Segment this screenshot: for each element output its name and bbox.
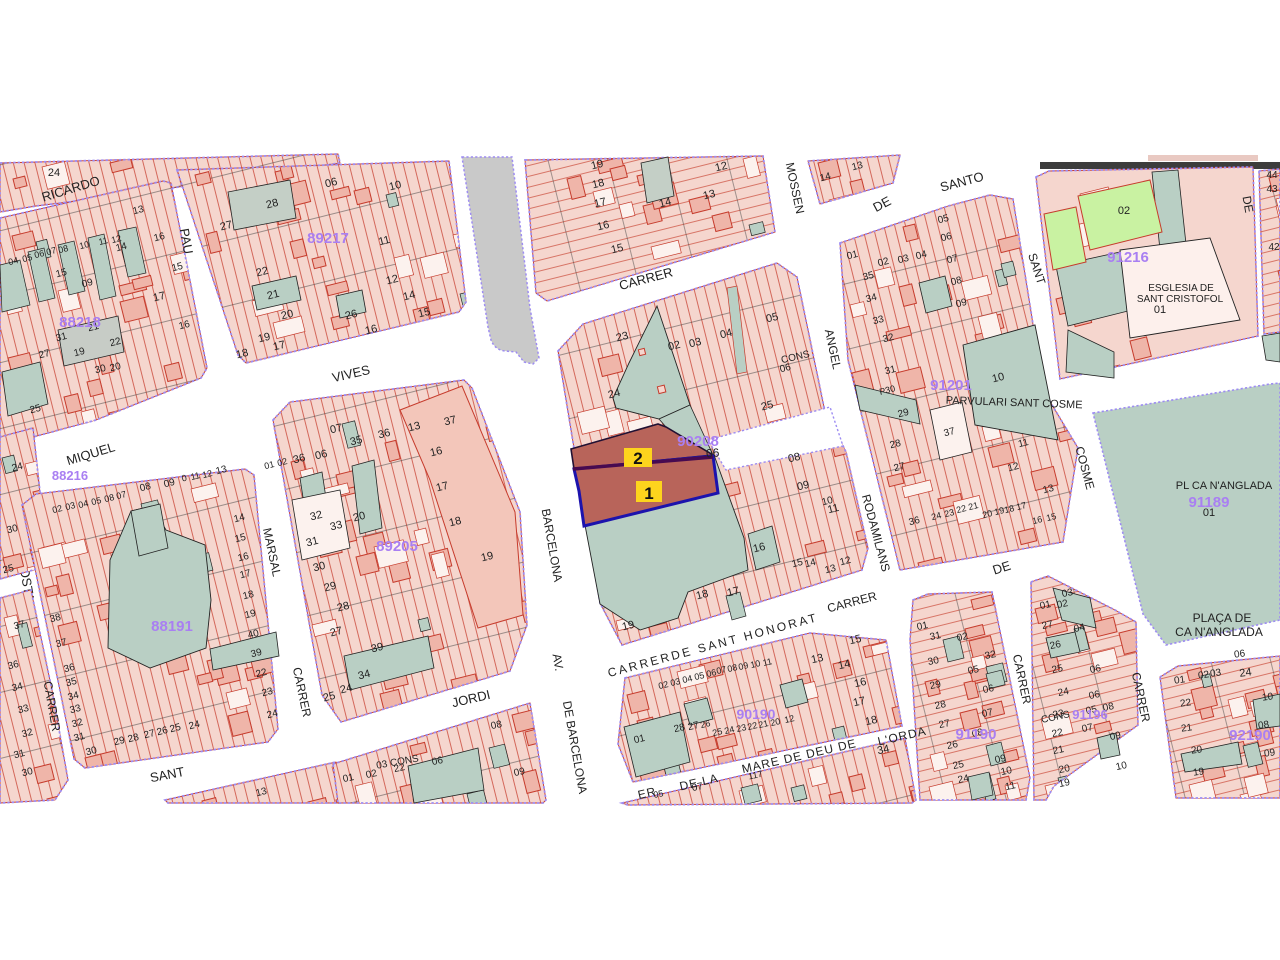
svg-text:02: 02 <box>1118 205 1130 217</box>
svg-text:42: 42 <box>1268 242 1280 253</box>
svg-text:2: 2 <box>633 449 642 468</box>
svg-text:DE: DE <box>1240 195 1257 214</box>
svg-text:01: 01 <box>1173 674 1186 687</box>
svg-text:91216: 91216 <box>1107 249 1149 266</box>
svg-text:91201: 91201 <box>930 377 972 394</box>
svg-text:09: 09 <box>1263 747 1276 760</box>
svg-text:1: 1 <box>644 484 653 503</box>
svg-text:90190: 90190 <box>737 706 776 722</box>
svg-text:03: 03 <box>1209 667 1222 680</box>
svg-text:88216: 88216 <box>52 468 88 483</box>
svg-text:20: 20 <box>1190 744 1203 757</box>
svg-text:21: 21 <box>1180 722 1193 735</box>
svg-text:24: 24 <box>1239 666 1253 680</box>
svg-text:43: 43 <box>1266 184 1278 195</box>
svg-text:89217: 89217 <box>307 230 349 247</box>
svg-text:24: 24 <box>48 167 60 179</box>
svg-text:22: 22 <box>1179 697 1192 710</box>
svg-text:PLAÇA DE: PLAÇA DE <box>1193 611 1252 625</box>
svg-text:91196: 91196 <box>1072 707 1107 722</box>
svg-text:AV.: AV. <box>550 653 567 673</box>
svg-text:88191: 88191 <box>151 618 193 635</box>
svg-text:88218: 88218 <box>59 314 101 331</box>
svg-text:89205: 89205 <box>376 538 418 555</box>
svg-text:01: 01 <box>1154 304 1166 316</box>
svg-text:02: 02 <box>1197 669 1210 682</box>
svg-text:19: 19 <box>1192 766 1205 779</box>
svg-text:SANT CRISTOFOL: SANT CRISTOFOL <box>1137 294 1224 305</box>
svg-text:06: 06 <box>705 445 720 460</box>
svg-text:CA N'ANGLADA: CA N'ANGLADA <box>1175 625 1263 639</box>
svg-text:ESGLESIA DE: ESGLESIA DE <box>1148 283 1214 294</box>
svg-text:10: 10 <box>1261 691 1274 704</box>
svg-text:06: 06 <box>1233 648 1246 661</box>
svg-text:91189: 91189 <box>1189 494 1230 511</box>
svg-text:91190: 91190 <box>956 726 997 743</box>
svg-text:PL CA N'ANGLADA: PL CA N'ANGLADA <box>1176 480 1273 492</box>
svg-text:44: 44 <box>1266 170 1278 181</box>
svg-text:92190: 92190 <box>1229 727 1271 744</box>
